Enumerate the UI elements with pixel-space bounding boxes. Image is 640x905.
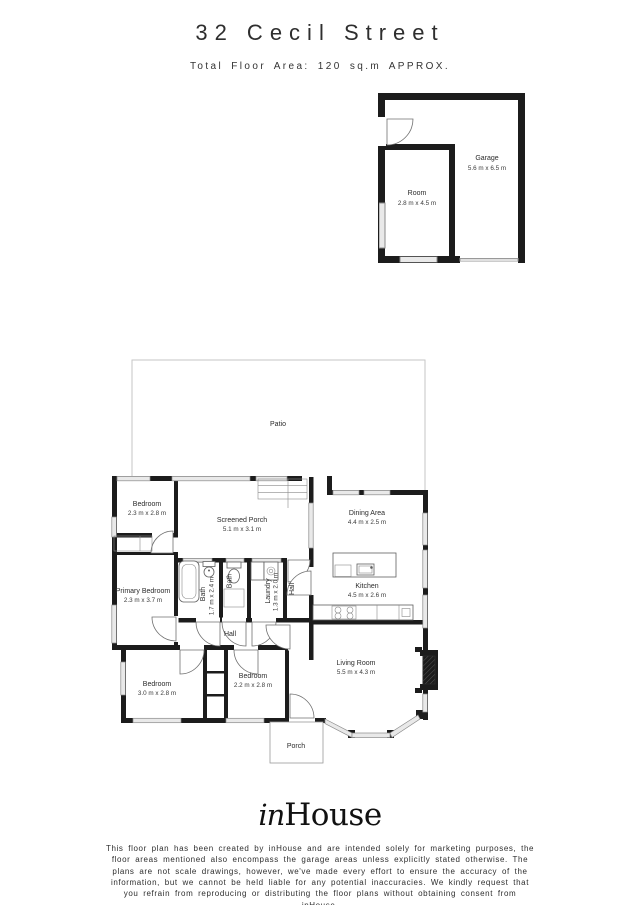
primary-bedroom-dims: 2.3 m x 3.7 m <box>124 597 162 604</box>
hall-upper-label: Hall <box>289 583 296 596</box>
shower <box>224 589 244 607</box>
laundry-dims: 1.3 m x 2.0 m <box>273 573 280 611</box>
steps <box>258 479 307 508</box>
garage-room-label: Room <box>408 190 427 197</box>
garage-entry-door <box>387 119 413 145</box>
inhouse-logo: inHouse <box>0 797 640 833</box>
bedroom-top-dims: 2.3 m x 2.8 m <box>128 510 166 517</box>
bedroom-top-label: Bedroom <box>133 501 162 508</box>
bedroom-left-dims: 3.0 m x 2.8 m <box>138 690 176 697</box>
bath-main-label: Bath <box>200 587 207 602</box>
garage-walls <box>377 93 525 263</box>
kitchen-counter <box>313 605 413 620</box>
living-room-dims: 5.5 m x 4.3 m <box>337 669 375 676</box>
logo-house: House <box>284 797 381 833</box>
kitchen-dims: 4.5 m x 2.6 m <box>348 592 386 599</box>
primary-bedroom-door <box>152 617 176 641</box>
fireplace <box>415 647 438 693</box>
dining-label: Dining Area <box>349 510 385 517</box>
bathtub <box>179 561 199 602</box>
logo-in: in <box>258 798 284 832</box>
bedroom-mid-door <box>234 650 258 674</box>
bath-main-door <box>196 622 220 646</box>
primary-bedroom-label: Primary Bedroom <box>116 588 171 595</box>
room-labels: Garage 5.6 m x 6.5 m Room 2.8 m x 4.5 m … <box>116 155 506 750</box>
dining-dims: 4.4 m x 2.5 m <box>348 519 386 526</box>
front-door <box>290 694 314 718</box>
floorplan-page: 32 Cecil Street Total Floor Area: 120 sq… <box>0 0 640 905</box>
closet-top <box>114 536 152 551</box>
garage-room-dims: 2.8 m x 4.5 m <box>398 200 436 207</box>
bath-sink <box>203 562 215 578</box>
bedroom-left-door <box>180 650 204 674</box>
bath-small-label: Bath <box>227 574 234 589</box>
bedroom-mid-dims: 2.2 m x 2.8 m <box>234 682 272 689</box>
bedroom-mid-label: Bedroom <box>239 673 268 680</box>
garage-label: Garage <box>475 155 498 162</box>
laundry-label: Laundry <box>265 578 272 604</box>
hall-lower-label: Hall <box>224 631 237 638</box>
screened-porch-label: Screened Porch <box>217 517 267 524</box>
garage-room-window-bottom <box>400 257 437 263</box>
bedroom-left-label: Bedroom <box>143 681 172 688</box>
bath-main-dims: 1.7 m x 2.4 m <box>209 577 216 615</box>
patio-label: Patio <box>270 421 286 428</box>
floorplan-drawing: Garage 5.6 m x 6.5 m Room 2.8 m x 4.5 m … <box>0 0 640 905</box>
kitchen-label: Kitchen <box>355 583 378 590</box>
garage-dims: 5.6 m x 6.5 m <box>468 165 506 172</box>
garage-room-window <box>379 203 385 248</box>
kitchen-island <box>333 553 396 577</box>
porch-label: Porch <box>287 743 305 750</box>
garage-door <box>460 259 518 262</box>
screened-porch-dims: 5.1 m x 3.1 m <box>223 526 261 533</box>
living-room-label: Living Room <box>337 660 376 667</box>
bay-window <box>390 715 420 738</box>
disclaimer-text: This floor plan has been created by inHo… <box>105 843 535 905</box>
bay-window <box>325 719 352 738</box>
